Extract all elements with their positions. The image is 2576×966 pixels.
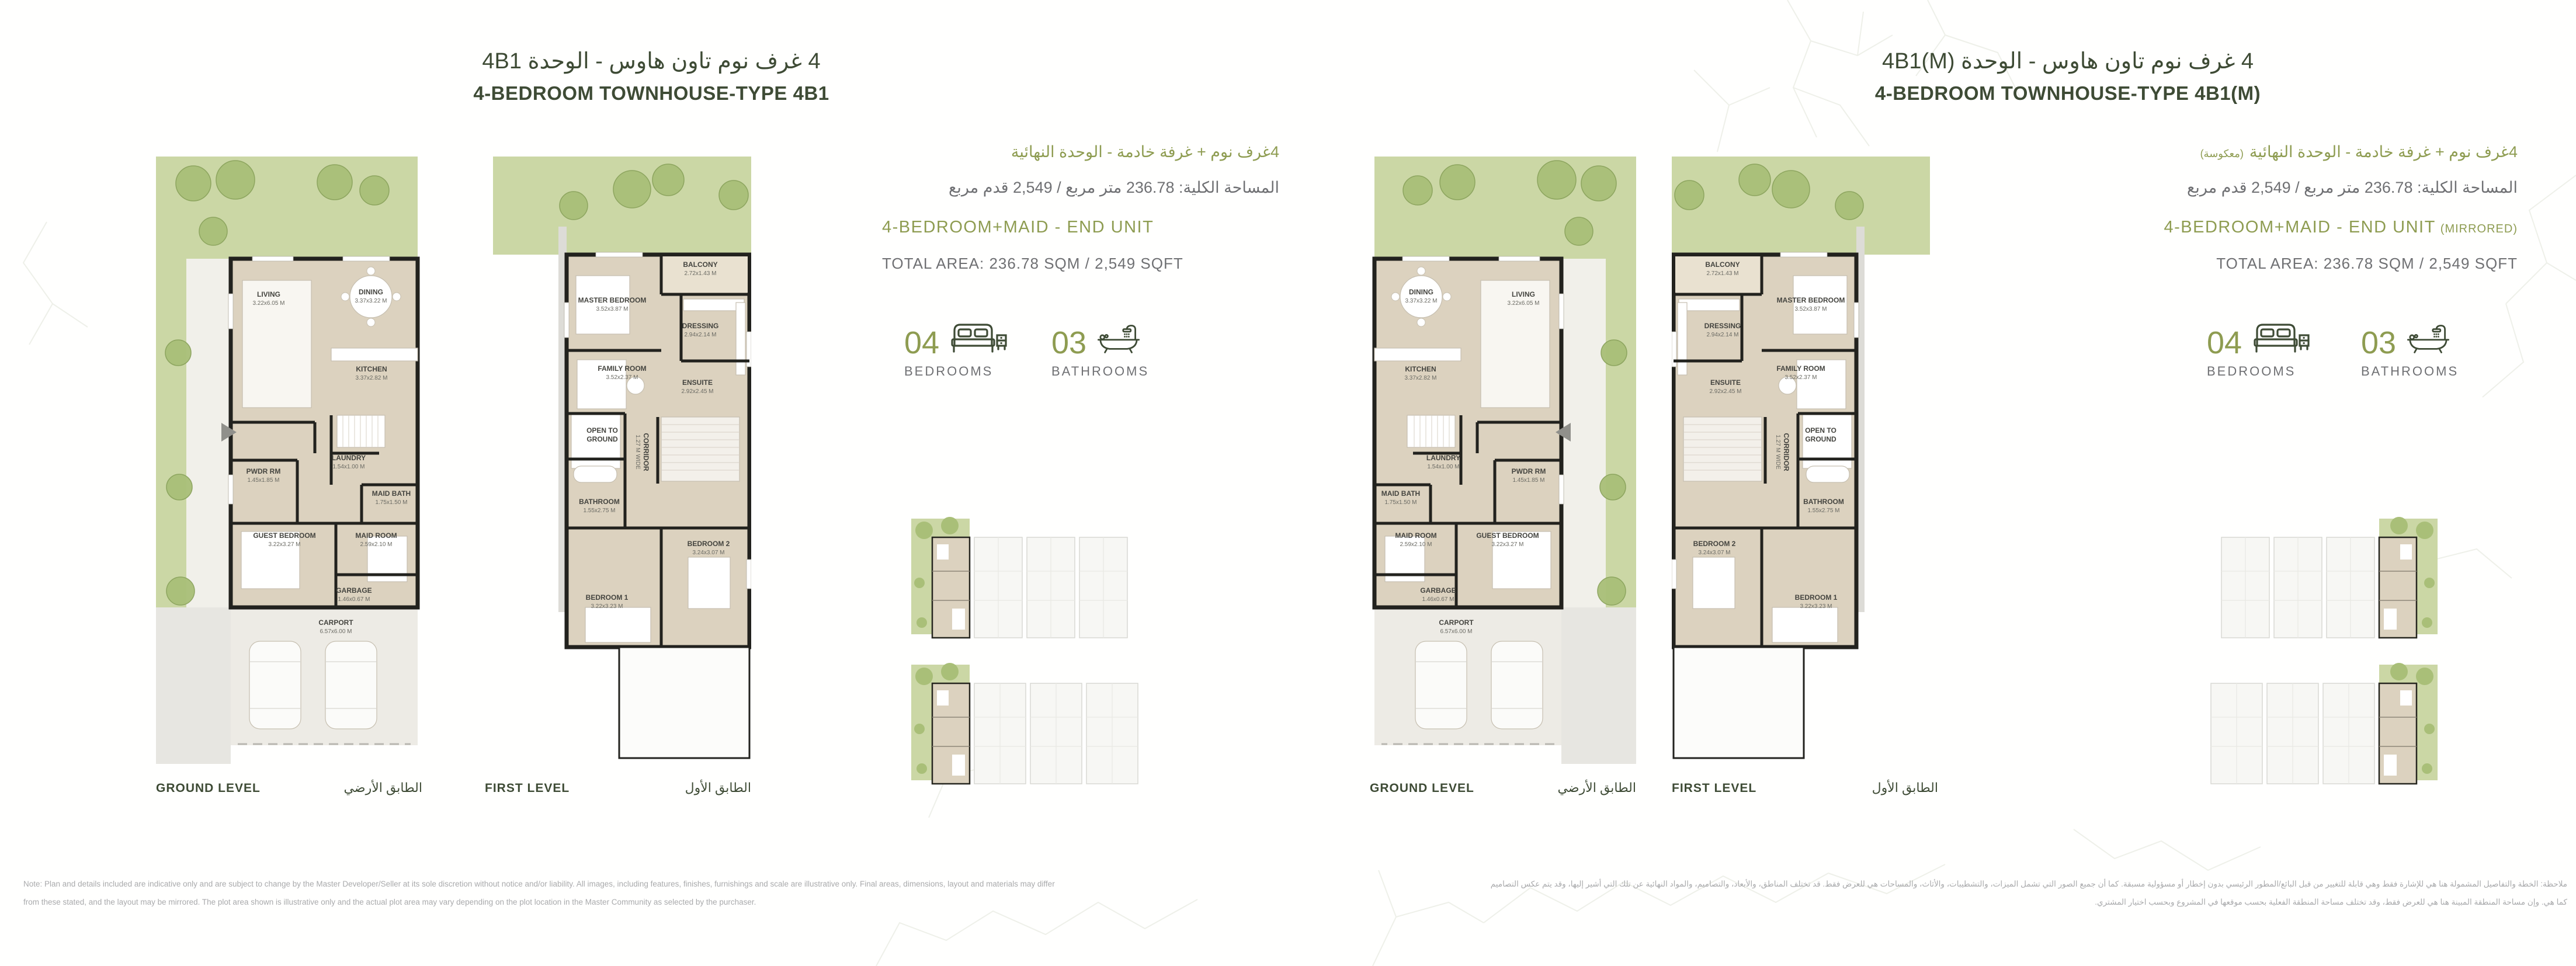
unit-area-arabic: المساحة الكلية: 236.78 متر مربع / 2,549 … [882,178,1279,197]
room-label-bed2: BEDROOM 2 [688,540,730,548]
svg-text:3.22x6.05 M: 3.22x6.05 M [252,300,284,307]
room-label-carport: CARPORT [1439,618,1474,627]
disclaimer-en-line2: from these stated, and the layout may be… [23,893,1273,911]
svg-text:3.37x2.82 M: 3.37x2.82 M [355,375,387,381]
bathrooms-count: 03 [1051,326,1086,359]
svg-text:2.94x2.14 M: 2.94x2.14 M [1706,332,1738,338]
room-label-dressing: DRESSING [1704,322,1741,330]
svg-text:2.92x2.45 M: 2.92x2.45 M [681,388,713,395]
svg-text:1.45x1.85 M: 1.45x1.85 M [247,477,279,484]
unit-title-english: 4-BEDROOM TOWNHOUSE-TYPE 4B1(M) [1805,82,2331,105]
bathrooms-stat: 03 BATHROOMS [1051,321,1149,379]
svg-text:1.55x2.75 M: 1.55x2.75 M [583,508,615,514]
unit-info-block: 4غرف نوم + غرفة خادمة - الوحدة النهائية(… [2079,142,2518,273]
room-label-pwdr: PWDR RM [247,467,281,475]
disclaimer-ar-line1: ملاحظة: الخطة والتفاصيل المشمولة هنا هي … [1332,875,2567,893]
svg-text:3.22x3.23 M: 3.22x3.23 M [591,603,623,610]
svg-text:3.52x3.87 M: 3.52x3.87 M [596,306,628,312]
svg-text:3.22x3.23 M: 3.22x3.23 M [1800,603,1832,610]
unit-title-block: 4 غرف نوم تاون هاوس - الوحدة 4B1(M) 4-BE… [1805,48,2331,105]
room-label-living: LIVING [1512,290,1535,298]
svg-text:3.37x3.22 M: 3.37x3.22 M [355,298,387,304]
room-label-maid_bath: MAID BATH [1381,489,1420,498]
svg-text:1.45x1.85 M: 1.45x1.85 M [1512,477,1544,484]
room-label-bed1: BEDROOM 1 [1795,593,1838,602]
svg-text:1.55x2.75 M: 1.55x2.75 M [1807,508,1839,514]
svg-text:1.54x1.00 M: 1.54x1.00 M [1427,464,1459,470]
svg-text:2.72x1.43 M: 2.72x1.43 M [684,270,716,277]
svg-text:3.24x3.07 M: 3.24x3.07 M [692,550,724,556]
unit-subtitle-english: 4-BEDROOM+MAID - END UNIT [882,217,1279,239]
level-label-ar: الطابق الأرضي [1558,780,1636,795]
svg-text:2.72x1.43 M: 2.72x1.43 M [1706,270,1738,277]
unit-location-keyplan [2198,661,2438,795]
svg-text:1.46x0.67 M: 1.46x0.67 M [1422,596,1454,603]
room-label-corridor: CORRIDOR [1782,433,1790,471]
level-label-row: GROUND LEVEL الطابق الأرضي [1370,780,1636,795]
room-label-bathroom: BATHROOM [1803,498,1844,506]
unit-title-arabic: 4 غرف نوم تاون هاوس - الوحدة 4B1 [388,48,914,75]
bedrooms-count: 04 [904,326,939,359]
svg-text:3.37x2.82 M: 3.37x2.82 M [1404,375,1436,381]
unit-location-keyplan [2214,515,2438,649]
room-label-garbage: GARBAGE [336,586,372,595]
svg-text:3.22x3.27 M: 3.22x3.27 M [268,541,300,548]
svg-text:3.37x3.22 M: 3.37x3.22 M [1405,298,1437,304]
unit-area-english: TOTAL AREA: 236.78 SQM / 2,549 SQFT [2079,254,2518,273]
unit-subtitle-arabic: 4غرف نوم + غرفة خادمة - الوحدة النهائية [882,142,1279,164]
disclaimer-english: Note: Plan and details included are indi… [23,875,1273,911]
unit-area-english: TOTAL AREA: 236.78 SQM / 2,549 SQFT [882,254,1279,273]
room-label-carport: CARPORT [318,618,353,627]
room-label-guest: GUEST BEDROOM [253,531,315,540]
room-label-laundry: LAUNDRY [1426,454,1460,462]
room-label-laundry: LAUNDRY [332,454,366,462]
unit-subtitle-arabic: 4غرف نوم + غرفة خادمة - الوحدة النهائية(… [2079,142,2518,164]
level-label-en: FIRST LEVEL [485,781,570,795]
room-label-open: OPEN TO [1805,426,1836,435]
room-label-living: LIVING [257,290,280,298]
room-label-corridor: CORRIDOR [642,433,650,471]
bathrooms-stat: 03 BATHROOMS [2361,321,2459,379]
disclaimer-en-line1: Note: Plan and details included are indi… [23,875,1273,893]
room-label-pwdr: PWDR RM [1512,467,1546,475]
unit-info-block: 4غرف نوم + غرفة خادمة - الوحدة النهائية … [882,142,1279,273]
first-level-floorplan-mirrored: BALCONY2.72x1.43 MMASTER BEDROOM3.52x3.8… [1672,157,1938,764]
unit-title-arabic: 4 غرف نوم تاون هاوس - الوحدة 4B1(M) [1805,48,2331,75]
svg-text:1.46x0.67 M: 1.46x0.67 M [338,596,370,603]
svg-text:3.52x3.87 M: 3.52x3.87 M [1794,306,1827,312]
room-label-bathroom: BATHROOM [579,498,620,506]
bathtub-icon [2405,321,2451,359]
unit-area-arabic: المساحة الكلية: 236.78 متر مربع / 2,549 … [2079,178,2518,197]
room-label-ensuite: ENSUITE [682,378,713,387]
svg-text:3.22x6.05 M: 3.22x6.05 M [1507,300,1539,307]
room-label-guest: GUEST BEDROOM [1476,531,1539,540]
svg-text:GROUND: GROUND [586,435,618,443]
unit-title-block: 4 غرف نوم تاون هاوس - الوحدة 4B1 4-BEDRO… [388,48,914,105]
bathrooms-label: BATHROOMS [1051,364,1149,379]
room-label-bed1: BEDROOM 1 [586,593,629,602]
room-label-master: MASTER BEDROOM [578,296,647,304]
room-label-garbage: GARBAGE [1420,586,1456,595]
svg-text:1.27 M WIDE: 1.27 M WIDE [634,435,641,470]
bedrooms-label: BEDROOMS [904,364,1007,379]
level-label-en: GROUND LEVEL [156,781,261,795]
bathtub-icon [1096,321,1141,359]
svg-text:2.59x2.10 M: 2.59x2.10 M [1400,541,1432,548]
room-label-balcony: BALCONY [1705,260,1740,269]
level-label-ar: الطابق الأول [685,780,751,795]
svg-text:1.75x1.50 M: 1.75x1.50 M [1384,499,1417,506]
room-label-dining: DINING [1409,288,1433,296]
level-label-row: FIRST LEVEL الطابق الأول [485,780,751,795]
level-label-row: GROUND LEVEL الطابق الأرضي [156,780,422,795]
disclaimer-arabic: ملاحظة: الخطة والتفاصيل المشمولة هنا هي … [1332,875,2567,911]
svg-text:6.57x6.00 M: 6.57x6.00 M [1440,628,1472,635]
unit-location-keyplan [911,515,1135,649]
room-label-balcony: BALCONY [683,260,717,269]
svg-text:2.94x2.14 M: 2.94x2.14 M [684,332,716,338]
bed-icon [2251,321,2310,359]
bathrooms-count: 03 [2361,326,2396,359]
room-label-maid: MAID ROOM [1395,531,1436,540]
room-label-family: FAMILY ROOM [598,364,646,373]
first-level-floorplan: BALCONY2.72x1.43 MMASTER BEDROOM3.52x3.8… [485,157,751,764]
level-label-row: FIRST LEVEL الطابق الأول [1672,780,1938,795]
unit-title-english: 4-BEDROOM TOWNHOUSE-TYPE 4B1 [388,82,914,105]
svg-text:3.24x3.07 M: 3.24x3.07 M [1698,550,1730,556]
svg-text:1.27 M WIDE: 1.27 M WIDE [1775,435,1781,470]
disclaimer-ar-line2: كما هي. وإن مساحة المنطقة المبينة هنا هي… [1332,893,2567,911]
bedrooms-label: BEDROOMS [2207,364,2310,379]
svg-text:3.52x2.37 M: 3.52x2.37 M [1785,374,1817,381]
room-label-maid: MAID ROOM [355,531,397,540]
ground-level-floorplan-mirrored: LIVING3.22x6.05 MDINING3.37x3.22 MKITCHE… [1370,157,1636,764]
ground-level-floorplan: LIVING3.22x6.05 MDINING3.37x3.22 MKITCHE… [156,157,422,764]
bed-icon [949,321,1007,359]
unit-subtitle-english: 4-BEDROOM+MAID - END UNIT(MIRRORED) [2079,217,2518,239]
svg-text:2.92x2.45 M: 2.92x2.45 M [1709,388,1741,395]
bedrooms-stat: 04 BEDROOMS [904,321,1007,379]
mirrored-note-arabic: (معكوسة) [2200,148,2244,159]
svg-text:1.54x1.00 M: 1.54x1.00 M [332,464,364,470]
room-label-kitchen: KITCHEN [356,365,387,373]
bedrooms-stat: 04 BEDROOMS [2207,321,2310,379]
room-label-dining: DINING [359,288,383,296]
svg-text:GROUND: GROUND [1805,435,1836,443]
unit-location-keyplan [911,661,1151,795]
room-label-kitchen: KITCHEN [1405,365,1436,373]
room-label-family: FAMILY ROOM [1776,364,1825,373]
svg-text:6.57x6.00 M: 6.57x6.00 M [320,628,352,635]
level-label-en: GROUND LEVEL [1370,781,1474,795]
room-label-open: OPEN TO [586,426,618,435]
svg-text:3.52x2.37 M: 3.52x2.37 M [606,374,638,381]
room-label-master: MASTER BEDROOM [1777,296,1845,304]
room-label-maid_bath: MAID BATH [372,489,411,498]
svg-text:1.75x1.50 M: 1.75x1.50 M [375,499,407,506]
bathrooms-label: BATHROOMS [2361,364,2459,379]
svg-text:3.22x3.27 M: 3.22x3.27 M [1491,541,1523,548]
room-label-bed2: BEDROOM 2 [1693,540,1736,548]
svg-text:2.59x2.10 M: 2.59x2.10 M [360,541,392,548]
bedrooms-count: 04 [2207,326,2242,359]
mirrored-note-english: (MIRRORED) [2440,223,2518,235]
level-label-ar: الطابق الأول [1872,780,1938,795]
room-label-dressing: DRESSING [682,322,719,330]
room-label-ensuite: ENSUITE [1710,378,1741,387]
level-label-ar: الطابق الأرضي [344,780,422,795]
level-label-en: FIRST LEVEL [1672,781,1756,795]
